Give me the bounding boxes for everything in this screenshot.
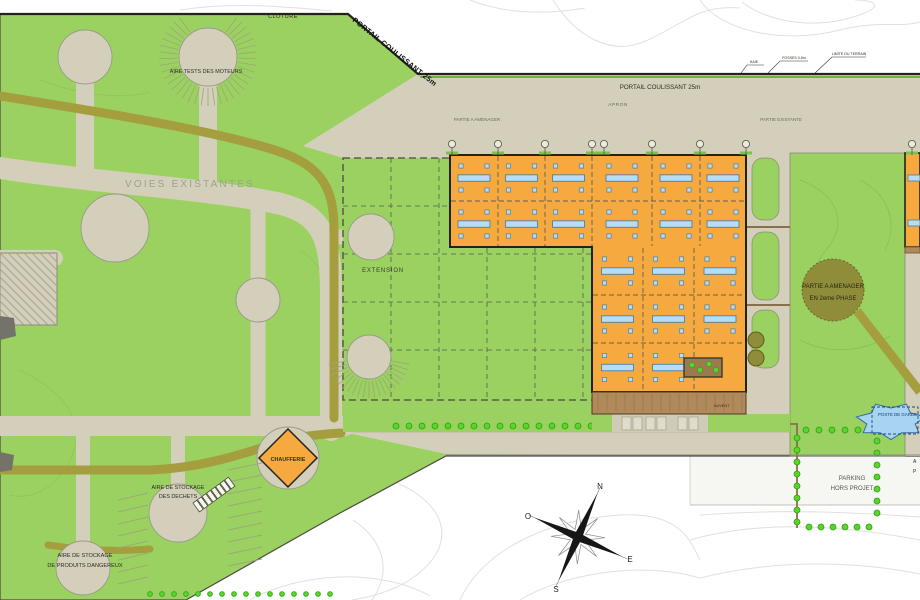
roof-vent bbox=[602, 257, 606, 261]
green-island bbox=[752, 158, 779, 220]
hedge-dot bbox=[160, 592, 165, 597]
hedge-dot bbox=[172, 592, 177, 597]
roof-vent bbox=[653, 305, 657, 309]
hedge-dot bbox=[575, 423, 581, 429]
skylight-bar bbox=[458, 175, 490, 182]
roof-vent bbox=[734, 188, 738, 192]
hedge-dot bbox=[196, 592, 201, 597]
site-plan-canvas: CLOTURE PORTAIL COULISSANT 25m PORTAIL C… bbox=[0, 0, 920, 600]
compass-label-north: N bbox=[597, 482, 603, 491]
roof-vent bbox=[734, 234, 738, 238]
hedge-dot bbox=[523, 423, 529, 429]
hedge-dot bbox=[874, 510, 880, 516]
truck-stall bbox=[622, 417, 631, 430]
roof-vent bbox=[607, 234, 611, 238]
label-extension: EXTENSION bbox=[362, 268, 404, 274]
roof-vent bbox=[708, 210, 712, 214]
skylight-bar bbox=[660, 221, 692, 228]
truck-stall bbox=[646, 417, 655, 430]
skylight-bar bbox=[602, 268, 634, 275]
roof-vent bbox=[653, 281, 657, 285]
skylight-bar bbox=[653, 364, 685, 371]
hedge-dot bbox=[471, 423, 477, 429]
skylight-bar bbox=[606, 221, 638, 228]
hedge-dot bbox=[874, 438, 880, 444]
roof-vent bbox=[532, 164, 536, 168]
roof-vent bbox=[607, 164, 611, 168]
skylight-bar bbox=[653, 268, 685, 275]
roof-vent bbox=[579, 188, 583, 192]
label-parking-2: HORS PROJET bbox=[831, 486, 874, 492]
skylight-bar bbox=[908, 220, 920, 226]
label-voies-existantes: VOIES EXISTANTES bbox=[125, 179, 255, 190]
truck-stall bbox=[678, 417, 687, 430]
roof-vent bbox=[628, 257, 632, 261]
roof-vent bbox=[679, 257, 683, 261]
hedge-dot bbox=[794, 495, 800, 501]
pad-circle bbox=[347, 335, 391, 379]
skylight-bar bbox=[707, 221, 739, 228]
skylight-bar bbox=[458, 221, 490, 228]
roof-vent bbox=[485, 188, 489, 192]
roof-vent bbox=[602, 329, 606, 333]
roof-vent bbox=[602, 305, 606, 309]
roof-vent bbox=[553, 210, 557, 214]
roof-vent bbox=[661, 188, 665, 192]
hedge-dot bbox=[393, 423, 399, 429]
hedge-dot bbox=[419, 423, 425, 429]
label-parking-1: PARKING bbox=[839, 476, 866, 482]
hedge-dot bbox=[855, 427, 861, 433]
hedge-dot bbox=[794, 471, 800, 477]
roof-vent bbox=[705, 257, 709, 261]
roof-vent bbox=[679, 281, 683, 285]
skylight-bar bbox=[602, 316, 634, 323]
truck-stalls bbox=[622, 417, 698, 430]
skylight-bar bbox=[704, 268, 736, 275]
phase2-circle bbox=[802, 259, 864, 321]
hedge-dot bbox=[232, 592, 237, 597]
hedge-dot bbox=[842, 427, 848, 433]
tree-circle bbox=[748, 350, 764, 366]
label-dechets-1: AIRE DE STOCKAGE bbox=[152, 485, 205, 491]
label-poste-garde: POSTE DE GARDE bbox=[878, 412, 917, 417]
label-fosses: FOSSES 0.8m bbox=[782, 56, 806, 60]
label-phase2-1: PARTIE A AMENAGER bbox=[802, 284, 864, 290]
roof-vent bbox=[628, 305, 632, 309]
compass-label-east: E bbox=[627, 555, 632, 564]
roof-vent bbox=[579, 210, 583, 214]
skylight-bar bbox=[602, 364, 634, 371]
roof-vent bbox=[485, 210, 489, 214]
hedge-dot bbox=[830, 524, 836, 530]
roof-vent bbox=[708, 188, 712, 192]
hedge-dot bbox=[256, 592, 261, 597]
skylight-bar bbox=[606, 175, 638, 182]
skylight-bar bbox=[660, 175, 692, 182]
existing-structure bbox=[0, 316, 16, 340]
loading-dock bbox=[592, 392, 746, 414]
grid-marker-circle bbox=[648, 140, 655, 147]
pad-circle bbox=[236, 278, 280, 322]
hedge-dot bbox=[874, 486, 880, 492]
label-partie-amenager: PARTIE A AMENAGER bbox=[454, 117, 501, 122]
hedge-dot bbox=[328, 592, 333, 597]
roof-vent bbox=[628, 377, 632, 381]
roof-vent bbox=[607, 188, 611, 192]
roof-vent bbox=[506, 164, 510, 168]
compass-label-west: O bbox=[525, 512, 531, 521]
label-partie-existante: PARTIE EXISTANTE bbox=[760, 117, 802, 122]
plant-dot bbox=[706, 361, 711, 366]
hedge-dot bbox=[484, 423, 490, 429]
hedge-dot bbox=[292, 592, 297, 597]
hedge-dot bbox=[432, 423, 438, 429]
roof-vent bbox=[506, 188, 510, 192]
roof-vent bbox=[633, 210, 637, 214]
roof-vent bbox=[579, 164, 583, 168]
building-fragment-dock bbox=[905, 247, 920, 253]
grid-marker-circle bbox=[588, 140, 595, 147]
skylight-bar bbox=[908, 175, 920, 181]
roof-vent bbox=[633, 164, 637, 168]
skylight-bar bbox=[506, 221, 538, 228]
roof-vent bbox=[553, 164, 557, 168]
roof-vent bbox=[679, 353, 683, 357]
hedge-dot bbox=[866, 524, 872, 530]
roof-vent bbox=[705, 305, 709, 309]
skylight-bar bbox=[707, 175, 739, 182]
pad-circle bbox=[179, 28, 237, 86]
hedge-dot bbox=[445, 423, 451, 429]
label-cloture: CLOTURE bbox=[268, 14, 298, 20]
skylight-bar bbox=[553, 175, 585, 182]
roof-vent bbox=[602, 353, 606, 357]
pad-circle bbox=[58, 30, 112, 84]
hedge-dot bbox=[244, 592, 249, 597]
skylight-bar bbox=[553, 221, 585, 228]
existing-structure bbox=[0, 452, 14, 472]
roof-vent bbox=[679, 377, 683, 381]
roof-vent bbox=[532, 188, 536, 192]
building-fragment bbox=[905, 153, 920, 247]
roof-vent bbox=[459, 164, 463, 168]
roof-vent bbox=[633, 188, 637, 192]
roof-vent bbox=[687, 210, 691, 214]
roof-vent bbox=[579, 234, 583, 238]
roof-vent bbox=[506, 234, 510, 238]
pad-circle bbox=[348, 214, 394, 260]
skylight-bar bbox=[704, 316, 736, 323]
roof-vent bbox=[602, 281, 606, 285]
grid-marker-circle bbox=[696, 140, 703, 147]
roof-vent bbox=[679, 305, 683, 309]
roof-vent bbox=[607, 210, 611, 214]
hedge-dot bbox=[268, 592, 273, 597]
hedge-dot bbox=[184, 592, 189, 597]
hedge-dot bbox=[549, 423, 555, 429]
roof-vent bbox=[734, 210, 738, 214]
label-apron: APRON bbox=[608, 102, 628, 108]
truck-stall bbox=[689, 417, 698, 430]
roof-vent bbox=[653, 329, 657, 333]
label-portail-n: PORTAIL COULISSANT 25m bbox=[620, 84, 701, 91]
hedge-dot bbox=[794, 459, 800, 465]
hedge-dot bbox=[280, 592, 285, 597]
hedge-dot bbox=[208, 592, 213, 597]
roof-vent bbox=[553, 234, 557, 238]
label-dangereux-2: DE PRODUITS DANGEREUX bbox=[47, 563, 122, 569]
label-phase2-2: EN 2eme PHASE bbox=[809, 296, 856, 302]
hedge-dot bbox=[816, 427, 822, 433]
hedge-dot bbox=[536, 423, 542, 429]
grid-marker-circle bbox=[541, 140, 548, 147]
roof-vent bbox=[485, 164, 489, 168]
roof-vent bbox=[532, 234, 536, 238]
hedge-dot bbox=[510, 423, 516, 429]
roof-vent bbox=[687, 234, 691, 238]
grid-marker-circle bbox=[600, 140, 607, 147]
pad-circle bbox=[149, 484, 207, 542]
grid-marker-circle bbox=[742, 140, 749, 147]
truck-stall bbox=[633, 417, 642, 430]
roof-vent bbox=[731, 281, 735, 285]
truck-stall bbox=[657, 417, 666, 430]
hedge-dot bbox=[794, 519, 800, 525]
roof-vent bbox=[653, 257, 657, 261]
roof-vent bbox=[705, 329, 709, 333]
roof-vent bbox=[459, 210, 463, 214]
green-island bbox=[752, 232, 779, 300]
hedge-dot bbox=[304, 592, 309, 597]
tree-circle bbox=[748, 332, 764, 348]
hedge-dot bbox=[148, 592, 153, 597]
plant-dot bbox=[689, 362, 694, 367]
roof-vent bbox=[485, 234, 489, 238]
roof-vent bbox=[679, 329, 683, 333]
hedge-dot bbox=[829, 427, 835, 433]
grid-marker-circle bbox=[494, 140, 501, 147]
skylight-bar bbox=[506, 175, 538, 182]
roof-vent bbox=[633, 234, 637, 238]
hedge-dot bbox=[458, 423, 464, 429]
roof-vent bbox=[661, 234, 665, 238]
roof-vent bbox=[705, 281, 709, 285]
roof-vent bbox=[687, 188, 691, 192]
roof-vent bbox=[731, 329, 735, 333]
hedge-dot bbox=[562, 423, 568, 429]
roof-vent bbox=[628, 353, 632, 357]
hedge-dot bbox=[806, 524, 812, 530]
label-haie: HAIE bbox=[750, 60, 759, 64]
hedge-dot bbox=[497, 423, 503, 429]
hedge-dot bbox=[406, 423, 412, 429]
roof-vent bbox=[506, 210, 510, 214]
roof-vent bbox=[602, 377, 606, 381]
compass-label-south: S bbox=[553, 585, 558, 594]
roof-vent bbox=[459, 234, 463, 238]
roof-vent bbox=[661, 164, 665, 168]
parking-area bbox=[690, 456, 920, 505]
hedge-dot bbox=[316, 592, 321, 597]
grid-marker-circle bbox=[908, 140, 915, 147]
roof-vent bbox=[708, 164, 712, 168]
label-limite-terrain: LIMITE DU TERRAIN bbox=[832, 52, 867, 56]
pad-circle bbox=[81, 194, 149, 262]
skylight-bar bbox=[653, 316, 685, 323]
roof-vent bbox=[734, 164, 738, 168]
label-chaufferie: CHAUFFERIE bbox=[271, 457, 306, 463]
hedge-dot bbox=[803, 427, 809, 433]
label-auvent: AUVENT bbox=[714, 404, 730, 408]
roof-vent bbox=[628, 329, 632, 333]
roof-vent bbox=[731, 305, 735, 309]
roof-vent bbox=[653, 377, 657, 381]
hedge-dot bbox=[854, 524, 860, 530]
roof-vent bbox=[687, 164, 691, 168]
hedge-dot bbox=[818, 524, 824, 530]
hedge-dot bbox=[794, 435, 800, 441]
roof-vent bbox=[628, 281, 632, 285]
hedge-dot bbox=[874, 474, 880, 480]
hedge-dot bbox=[220, 592, 225, 597]
grid-marker-circle bbox=[448, 140, 455, 147]
hedge-dot bbox=[874, 498, 880, 504]
plant-dot bbox=[697, 367, 702, 372]
roof-vent bbox=[459, 188, 463, 192]
hedge-dot bbox=[794, 483, 800, 489]
plant-dot bbox=[713, 367, 718, 372]
hedge-dot bbox=[842, 524, 848, 530]
hedge-dot bbox=[794, 507, 800, 513]
roof-vent bbox=[661, 210, 665, 214]
roof-vent bbox=[553, 188, 557, 192]
hedge-dot bbox=[794, 447, 800, 453]
roof-vent bbox=[708, 234, 712, 238]
label-aire-tests: AIRE TESTS DES MOTEURS bbox=[170, 69, 243, 75]
site-plan-drawing: CLOTURE PORTAIL COULISSANT 25m PORTAIL C… bbox=[0, 0, 920, 600]
hedge-dot bbox=[874, 462, 880, 468]
label-dechets-2: DES DECHETS bbox=[159, 494, 198, 500]
roof-vent bbox=[731, 257, 735, 261]
label-dangereux-1: AIRE DE STOCKAGE bbox=[58, 553, 113, 559]
roof-vent bbox=[532, 210, 536, 214]
roof-vent bbox=[653, 353, 657, 357]
